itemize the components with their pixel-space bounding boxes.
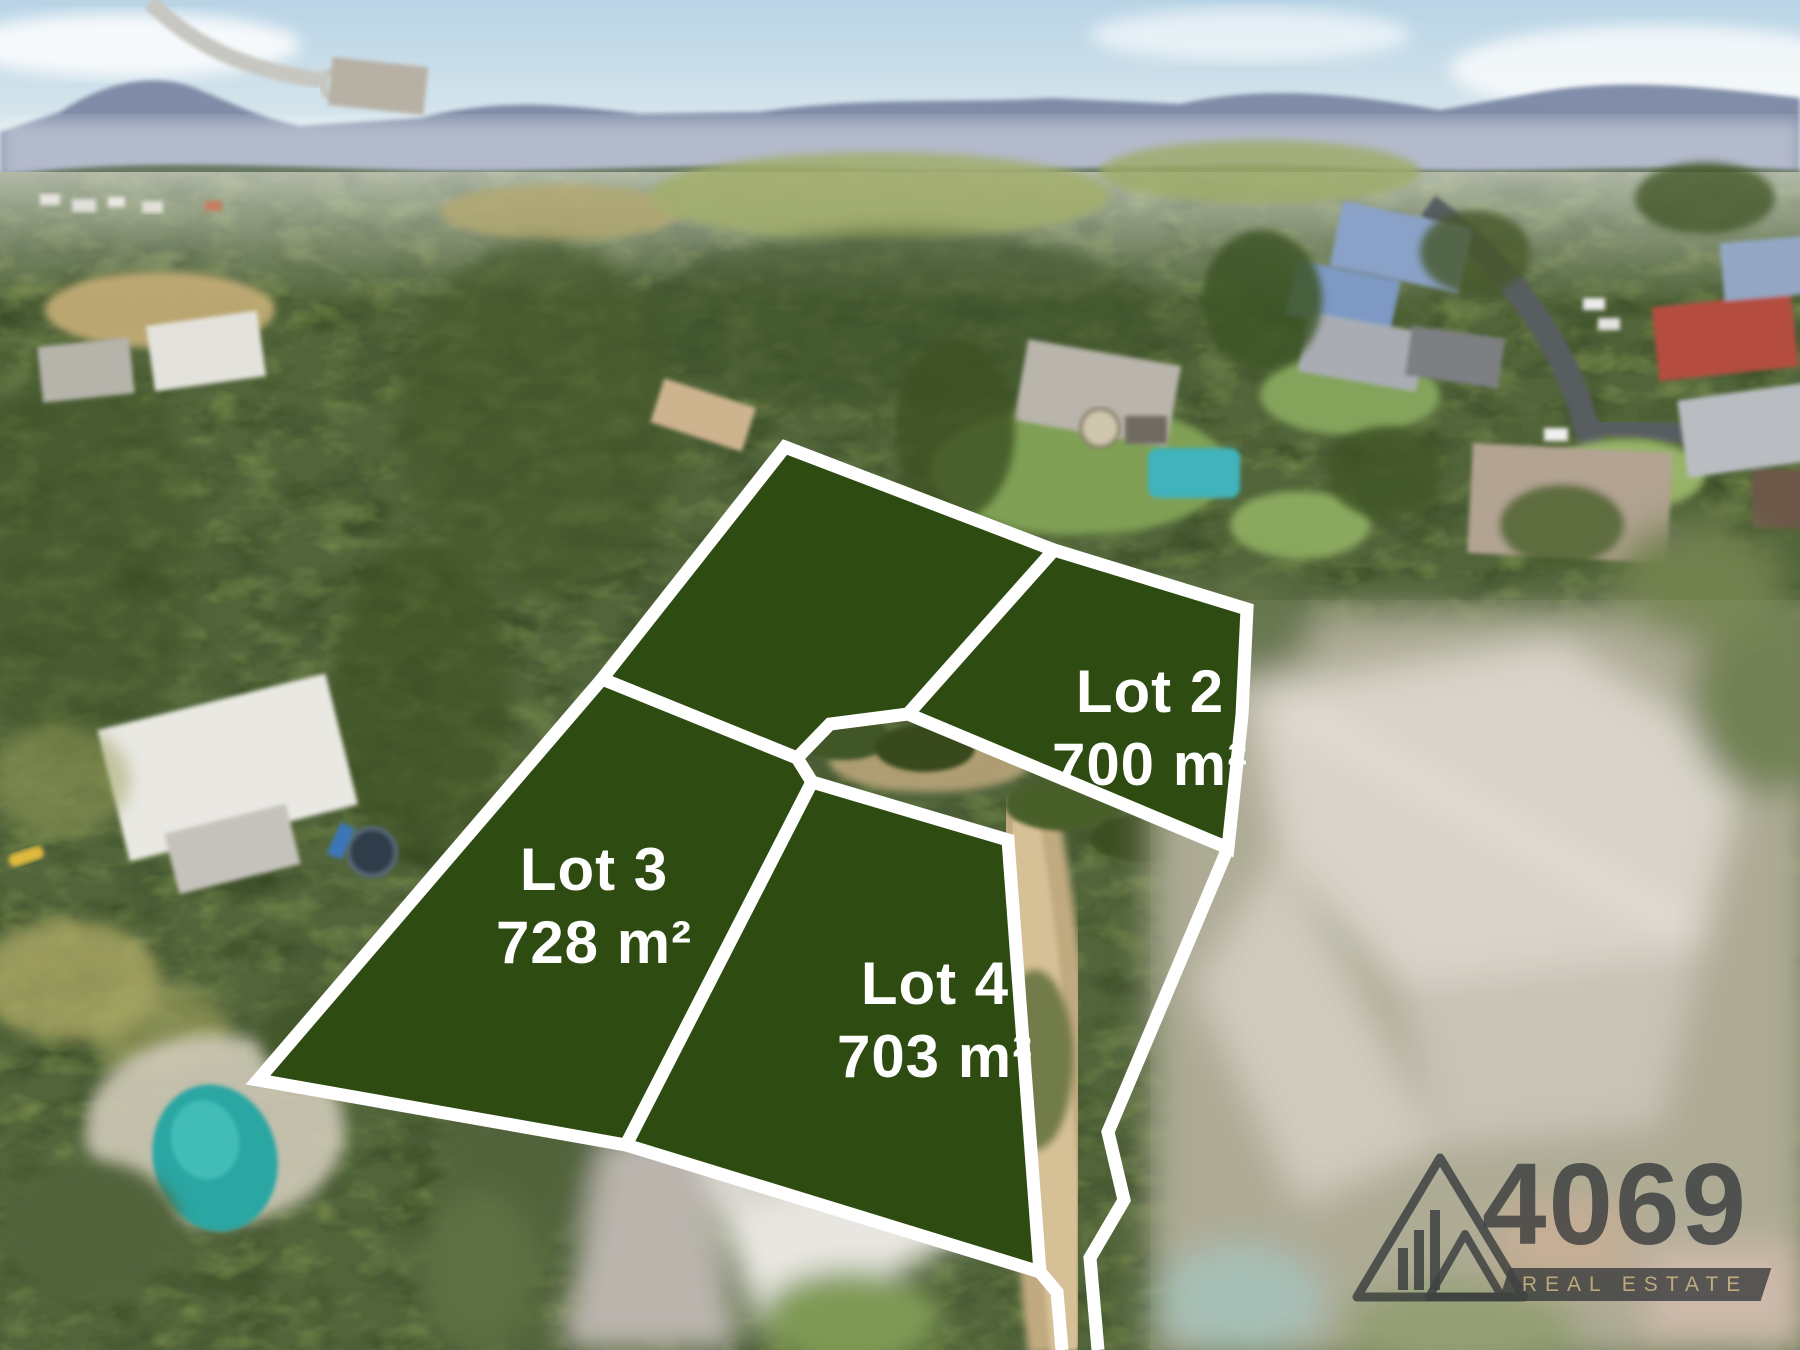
driveway-border-right [1090, 848, 1228, 1350]
lot4-name: Lot 4 [837, 947, 1033, 1020]
lot3-name: Lot 3 [496, 833, 692, 906]
brand-band: REAL ESTATE [1499, 1268, 1772, 1301]
brand-number: 4069 [1482, 1146, 1748, 1262]
aerial-photo: Lot 2 700 m² Lot 3 728 m² Lot 4 703 m² 4… [0, 0, 1800, 1350]
lot2-area: 700 m² [1052, 728, 1248, 801]
lot3-area: 728 m² [496, 906, 692, 979]
lot4-label: Lot 4 703 m² [837, 947, 1033, 1093]
lot3-label: Lot 3 728 m² [496, 833, 692, 979]
lot2-name: Lot 2 [1052, 655, 1248, 728]
lot2-label: Lot 2 700 m² [1052, 655, 1248, 801]
brand-tagline: REAL ESTATE [1522, 1273, 1748, 1297]
agency-watermark: 4069 REAL ESTATE [1352, 1152, 1772, 1322]
driveway-border-left [1040, 1272, 1062, 1350]
lot4-area: 703 m² [837, 1020, 1033, 1093]
